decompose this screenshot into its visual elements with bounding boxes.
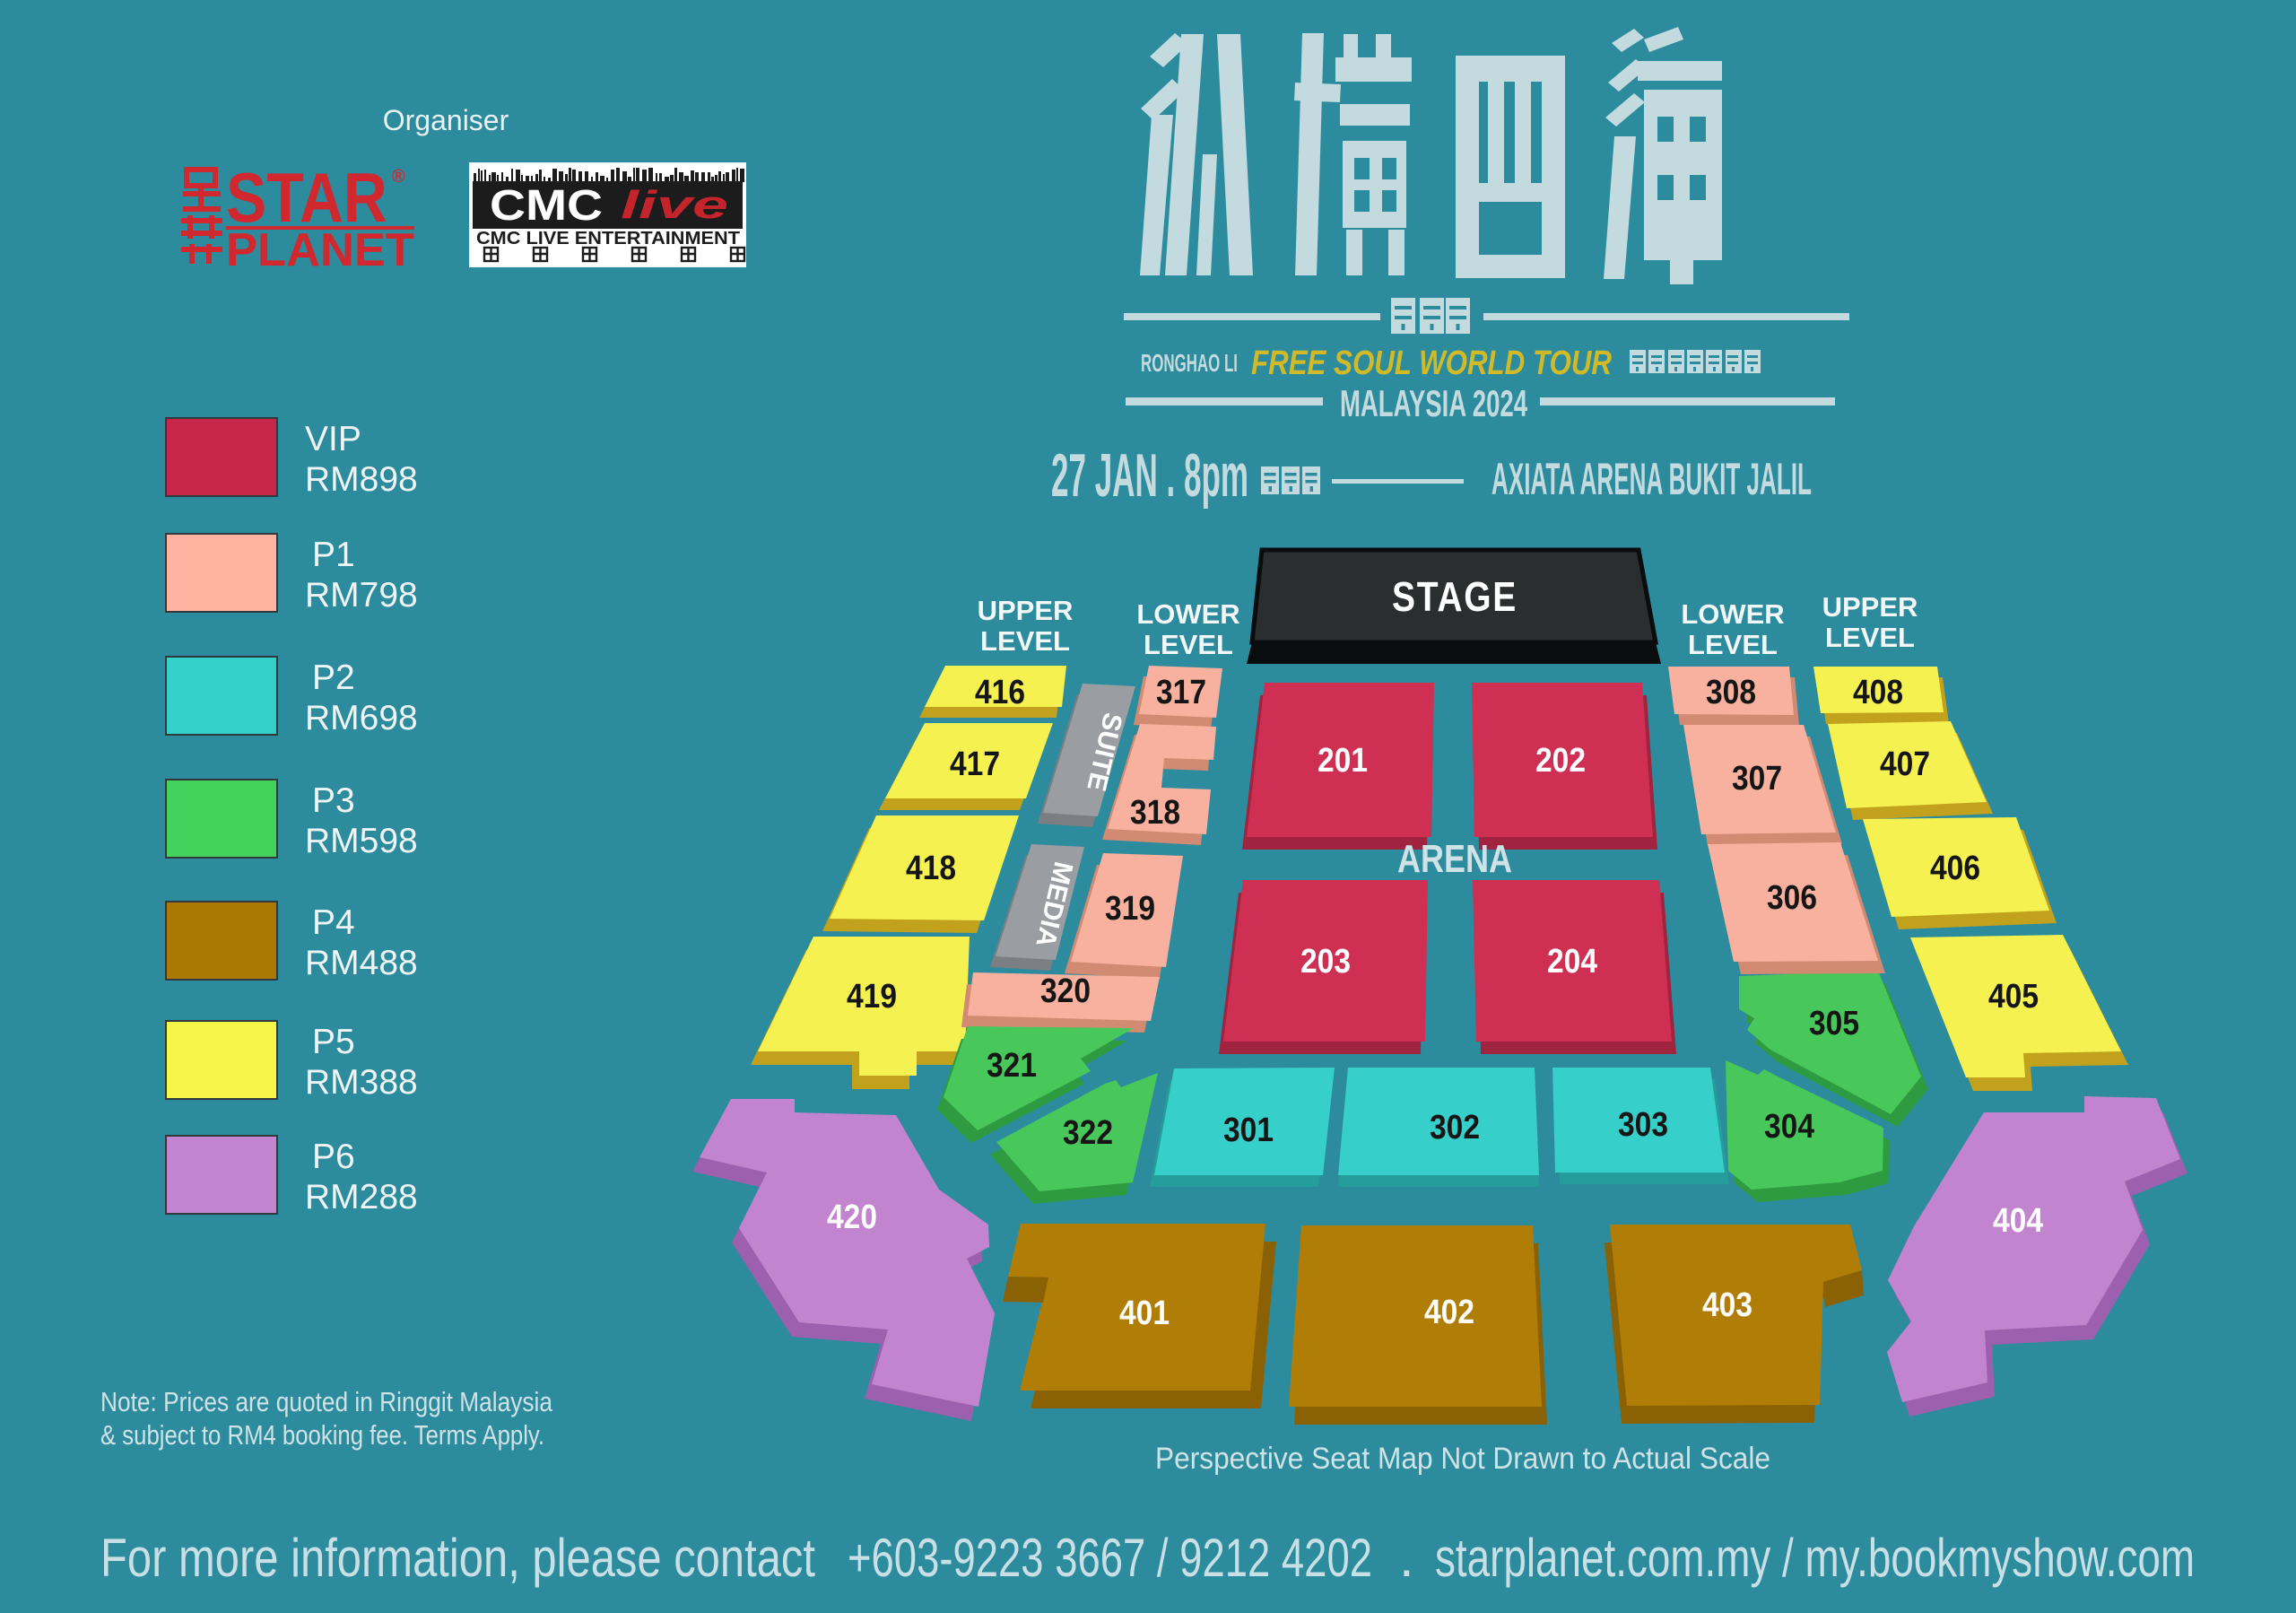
svg-text:419: 419 (847, 978, 897, 1016)
svg-text:27 JAN . 8pm: 27 JAN . 8pm (1051, 441, 1248, 510)
svg-text:P6: P6 (312, 1138, 355, 1176)
svg-text:®: ® (392, 167, 405, 187)
svg-text:LEVEL: LEVEL (980, 625, 1070, 657)
svg-text:LOWER: LOWER (1136, 598, 1239, 630)
svg-text:302: 302 (1430, 1109, 1480, 1147)
svg-text:308: 308 (1706, 674, 1756, 711)
svg-text:LEVEL: LEVEL (1144, 629, 1233, 660)
svg-text:201: 201 (1318, 742, 1368, 780)
svg-text:RONGHAO LI: RONGHAO LI (1141, 349, 1238, 377)
svg-text:318: 318 (1130, 794, 1180, 832)
svg-text:RM898: RM898 (305, 460, 418, 499)
svg-text:For more information, please c: For more information, please contact (100, 1528, 815, 1588)
svg-text:CMC: CMC (490, 182, 603, 230)
svg-text:305: 305 (1809, 1005, 1859, 1042)
svg-text:.: . (1399, 1528, 1414, 1588)
svg-text:203: 203 (1300, 943, 1351, 981)
svg-text:405: 405 (1988, 978, 2039, 1016)
svg-text:RM288: RM288 (305, 1178, 418, 1216)
svg-text:301: 301 (1223, 1112, 1274, 1149)
svg-text:304: 304 (1764, 1108, 1814, 1146)
svg-text:401: 401 (1119, 1295, 1170, 1332)
svg-text:& subject to RM4 booking fee.: & subject to RM4 booking fee. Terms Appl… (100, 1419, 544, 1451)
svg-text:P5: P5 (312, 1023, 355, 1061)
svg-text:MALAYSIA 2024: MALAYSIA 2024 (1340, 382, 1527, 424)
svg-text:Organiser: Organiser (383, 104, 509, 136)
svg-text:402: 402 (1424, 1294, 1474, 1331)
svg-text:417: 417 (950, 745, 1000, 783)
svg-text:P3: P3 (312, 781, 355, 820)
svg-text:321: 321 (987, 1047, 1037, 1085)
svg-text:416: 416 (975, 674, 1025, 711)
svg-text:403: 403 (1702, 1286, 1752, 1324)
svg-text:VIP: VIP (305, 420, 361, 458)
svg-text:306: 306 (1767, 879, 1817, 917)
svg-text:P2: P2 (312, 658, 355, 697)
svg-text:FREE SOUL WORLD TOUR: FREE SOUL WORLD TOUR (1251, 344, 1612, 382)
svg-text:RM388: RM388 (305, 1063, 418, 1102)
svg-text:322: 322 (1063, 1114, 1113, 1152)
svg-text:408: 408 (1853, 674, 1903, 711)
svg-text:Note: Prices are quoted in Rin: Note: Prices are quoted in Ringgit Malay… (100, 1386, 553, 1417)
svg-text:320: 320 (1040, 972, 1091, 1010)
svg-text:RM798: RM798 (305, 576, 418, 615)
svg-text:420: 420 (827, 1199, 877, 1236)
svg-text:UPPER: UPPER (978, 595, 1074, 626)
svg-text:317: 317 (1156, 674, 1206, 711)
svg-text:202: 202 (1535, 742, 1586, 780)
svg-text:CMC LIVE ENTERTAINMENT: CMC LIVE ENTERTAINMENT (476, 229, 740, 248)
svg-text:406: 406 (1930, 850, 1980, 887)
svg-text:P4: P4 (312, 903, 355, 942)
svg-text:starplanet.com.my / my.bookmys: starplanet.com.my / my.bookmyshow.com (1435, 1528, 2195, 1588)
svg-text:RM598: RM598 (305, 822, 418, 860)
svg-text:404: 404 (1993, 1202, 2043, 1240)
svg-text:LEVEL: LEVEL (1825, 622, 1915, 653)
svg-text:+603-9223 3667 / 9212 4202: +603-9223 3667 / 9212 4202 (848, 1528, 1372, 1588)
svg-text:UPPER: UPPER (1822, 591, 1918, 623)
svg-text:204: 204 (1547, 943, 1597, 981)
svg-text:LEVEL: LEVEL (1688, 629, 1778, 660)
svg-text:ARENA: ARENA (1397, 837, 1512, 881)
svg-text:LOWER: LOWER (1681, 598, 1784, 630)
svg-text:RM698: RM698 (305, 699, 418, 737)
svg-text:RM488: RM488 (305, 944, 418, 982)
svg-text:319: 319 (1105, 890, 1155, 928)
svg-text:407: 407 (1880, 745, 1930, 783)
svg-text:STAGE: STAGE (1392, 573, 1518, 620)
svg-text:live: live (621, 183, 728, 227)
svg-text:P1: P1 (312, 536, 355, 574)
svg-text:307: 307 (1732, 760, 1782, 798)
svg-text:PLANET: PLANET (226, 224, 414, 276)
svg-text:AXIATA ARENA BUKIT JALIL: AXIATA ARENA BUKIT JALIL (1492, 454, 1812, 504)
svg-text:Perspective Seat Map Not Drawn: Perspective Seat Map Not Drawn to Actual… (1155, 1442, 1770, 1476)
svg-text:303: 303 (1618, 1106, 1668, 1144)
svg-text:418: 418 (906, 850, 956, 887)
